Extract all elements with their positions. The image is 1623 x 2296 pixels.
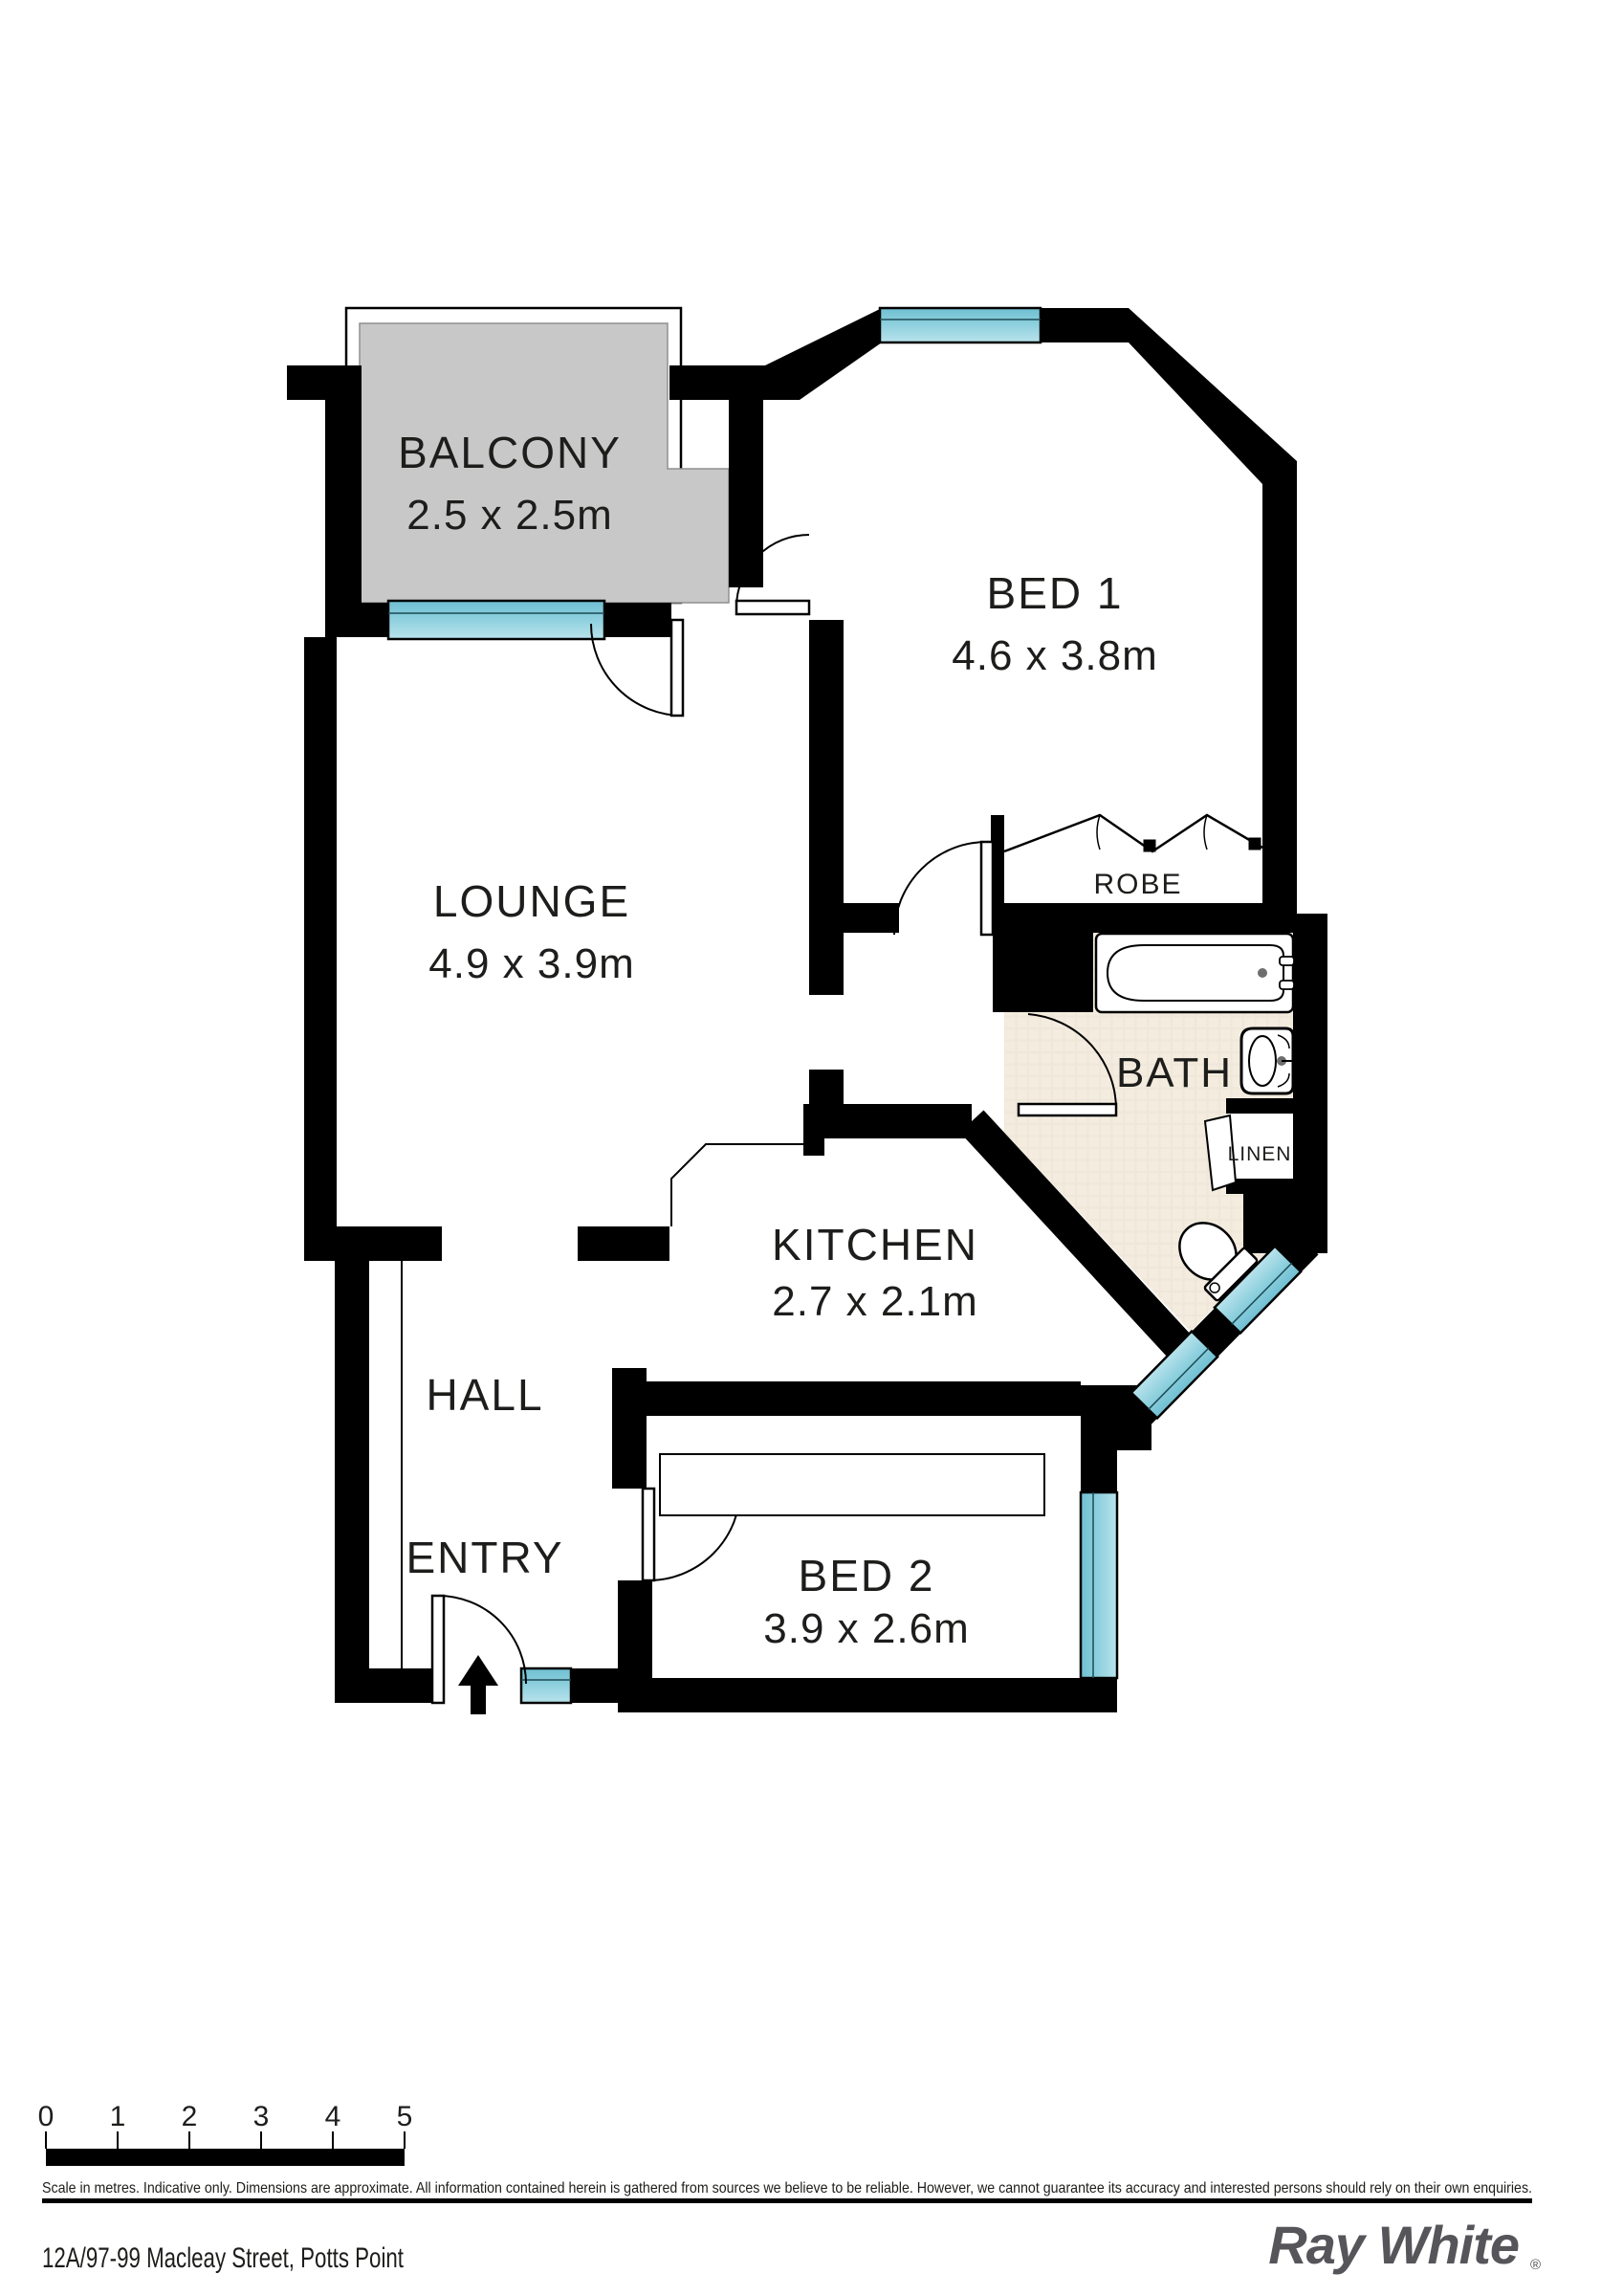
scale-tick-label: 5 bbox=[397, 2101, 413, 2132]
bathtub-tap bbox=[1280, 957, 1294, 965]
entry-arrow-icon bbox=[458, 1655, 498, 1714]
scale-ticks bbox=[46, 2131, 405, 2149]
wall bbox=[809, 620, 844, 995]
bed2-wardrobe bbox=[660, 1454, 1044, 1515]
bathtub bbox=[1096, 934, 1294, 1012]
wall bbox=[993, 933, 1093, 1012]
wall bbox=[578, 1226, 669, 1261]
disclaimer-text: Scale in metres. Indicative only. Dimens… bbox=[42, 2180, 1532, 2197]
scale-tick-label: 3 bbox=[253, 2101, 270, 2132]
brand-name: Ray White bbox=[1268, 2215, 1519, 2275]
scale-tick-label: 4 bbox=[325, 2101, 341, 2132]
lounge-dims: 4.9 x 3.9m bbox=[428, 940, 634, 987]
bed2-dims: 3.9 x 2.6m bbox=[763, 1605, 969, 1652]
bed1-window bbox=[880, 308, 1041, 342]
bathtub-drain bbox=[1258, 968, 1267, 978]
wall-chamfer-left bbox=[765, 308, 882, 400]
entry-label: ENTRY bbox=[406, 1533, 563, 1582]
robe-rail bbox=[1004, 815, 1262, 851]
lounge-window bbox=[388, 601, 604, 639]
bed1-door bbox=[894, 842, 993, 935]
bed2-window bbox=[1081, 1492, 1117, 1678]
wall bbox=[612, 1368, 647, 1489]
robe-label: ROBE bbox=[1093, 869, 1182, 900]
bed2-label: BED 2 bbox=[799, 1551, 935, 1601]
wall bbox=[993, 914, 1293, 933]
bed1-label: BED 1 bbox=[987, 568, 1124, 618]
linen-label: LINEN bbox=[1228, 1143, 1292, 1165]
wall bbox=[304, 637, 337, 1261]
scale-tick-label: 2 bbox=[182, 2101, 198, 2132]
bed1-dims: 4.6 x 3.8m bbox=[952, 632, 1157, 679]
ray-white-logo: Ray White ® bbox=[1268, 2215, 1541, 2275]
wall bbox=[669, 365, 765, 400]
wall bbox=[1262, 461, 1297, 933]
wall bbox=[803, 1138, 824, 1156]
wall bbox=[335, 1261, 369, 1703]
floorplan-page: BALCONY 2.5 x 2.5m BED 1 4.6 x 3.8m LOUN… bbox=[0, 0, 1623, 2296]
wall-chamfer-right bbox=[1129, 308, 1297, 484]
entry-sidelight-window bbox=[521, 1668, 571, 1703]
wall bbox=[729, 400, 763, 587]
kitchen-dims: 2.7 x 2.1m bbox=[772, 1278, 977, 1325]
wall bbox=[335, 1668, 438, 1703]
wall bbox=[618, 1580, 652, 1678]
wall bbox=[1081, 1416, 1117, 1496]
scale-bar-rule bbox=[46, 2149, 405, 2166]
wall bbox=[287, 365, 362, 400]
linen-top-wall bbox=[1226, 1098, 1293, 1114]
scale-tick-label: 1 bbox=[110, 2101, 126, 2132]
wall bbox=[337, 1226, 442, 1261]
lounge-label: LOUNGE bbox=[433, 876, 630, 926]
wall bbox=[1041, 308, 1129, 342]
wall bbox=[803, 1104, 972, 1138]
property-address: 12A/97-99 Macleay Street, Potts Point bbox=[42, 2242, 404, 2274]
registered-mark-icon: ® bbox=[1530, 2257, 1541, 2273]
balcony-label: BALCONY bbox=[398, 428, 622, 477]
wall bbox=[604, 603, 671, 637]
wall bbox=[618, 1678, 1117, 1712]
kitchen-label: KITCHEN bbox=[772, 1220, 978, 1269]
wall bbox=[325, 400, 362, 637]
wall bbox=[844, 903, 899, 933]
footer-divider bbox=[42, 2198, 1532, 2203]
wall bbox=[809, 1070, 844, 1104]
floorplan-drawing: BALCONY 2.5 x 2.5m BED 1 4.6 x 3.8m LOUN… bbox=[0, 0, 1623, 2296]
bath-label: BATH bbox=[1116, 1049, 1233, 1096]
scale-tick-label: 0 bbox=[38, 2101, 55, 2132]
balcony-dims: 2.5 x 2.5m bbox=[406, 492, 612, 539]
kitchen-open-corner-line bbox=[671, 1144, 803, 1226]
basin bbox=[1241, 1028, 1293, 1093]
wall bbox=[647, 1381, 1081, 1416]
bathtub-tap bbox=[1280, 981, 1294, 989]
hall-label: HALL bbox=[426, 1370, 543, 1420]
scale-bar: 0 1 2 3 4 5 bbox=[38, 2101, 413, 2166]
wall bbox=[325, 603, 388, 637]
